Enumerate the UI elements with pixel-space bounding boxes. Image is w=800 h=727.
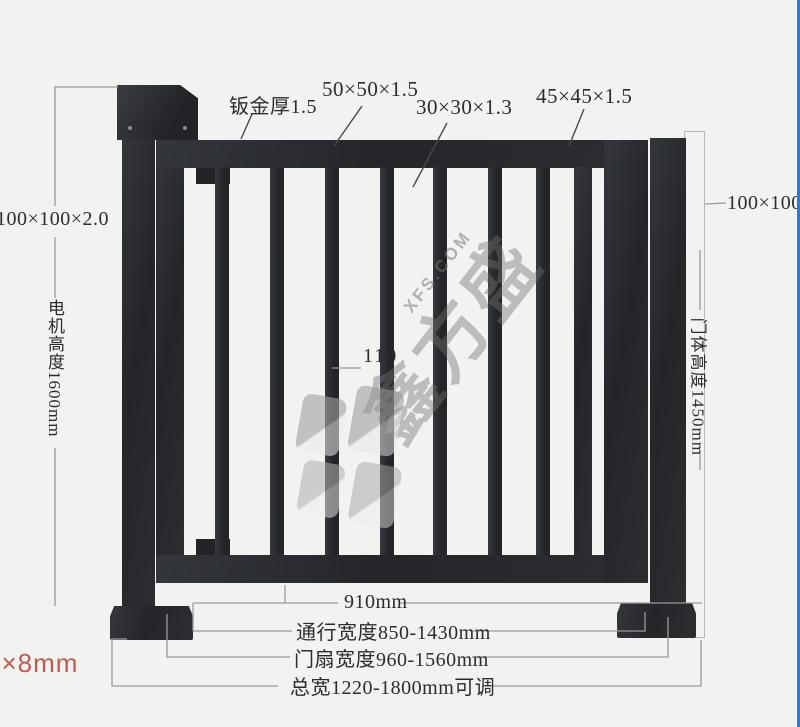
label-opening-width: 910mm: [344, 591, 408, 614]
leader-leaf-edge-tube: [569, 109, 584, 146]
dim-total-left: [112, 639, 278, 686]
leader-frame-tube: [334, 106, 362, 146]
dim-right-post-leader: [705, 203, 726, 204]
label-motor-height: 电机高度1600mm: [42, 299, 67, 449]
label-leaf-width: 门扇宽度960-1560mm: [294, 643, 489, 672]
dim-passage-right: [470, 612, 645, 631]
label-right-post-spec: 100×100: [727, 192, 800, 215]
label-sheet-thickness: 钣金厚1.5: [229, 90, 317, 119]
dim-leaf-left: [167, 614, 290, 657]
diagram-canvas: 钣金厚1.5 50×50×1.5 30×30×1.3 45×45×1.5 100…: [0, 0, 800, 727]
label-picket-tube: 30×30×1.3: [416, 95, 512, 120]
label-left-post-spec: 100×100×2.0: [0, 208, 109, 231]
label-frame-tube: 50×50×1.5: [322, 77, 418, 102]
label-picket-gap: 110: [363, 345, 398, 368]
label-total-width: 总宽1220-1800mm可调: [290, 671, 495, 700]
leader-picket-tube: [413, 123, 447, 187]
label-passage-width: 通行宽度850-1430mm: [296, 616, 491, 645]
dim-leaf-right: [472, 617, 668, 657]
dim-left-height-top: [55, 87, 118, 206]
label-leaf-edge-tube: 45×45×1.5: [536, 84, 632, 109]
label-anchor-note: 0×8mm: [0, 648, 78, 679]
label-door-height: 门体高度1450mm: [688, 318, 713, 454]
